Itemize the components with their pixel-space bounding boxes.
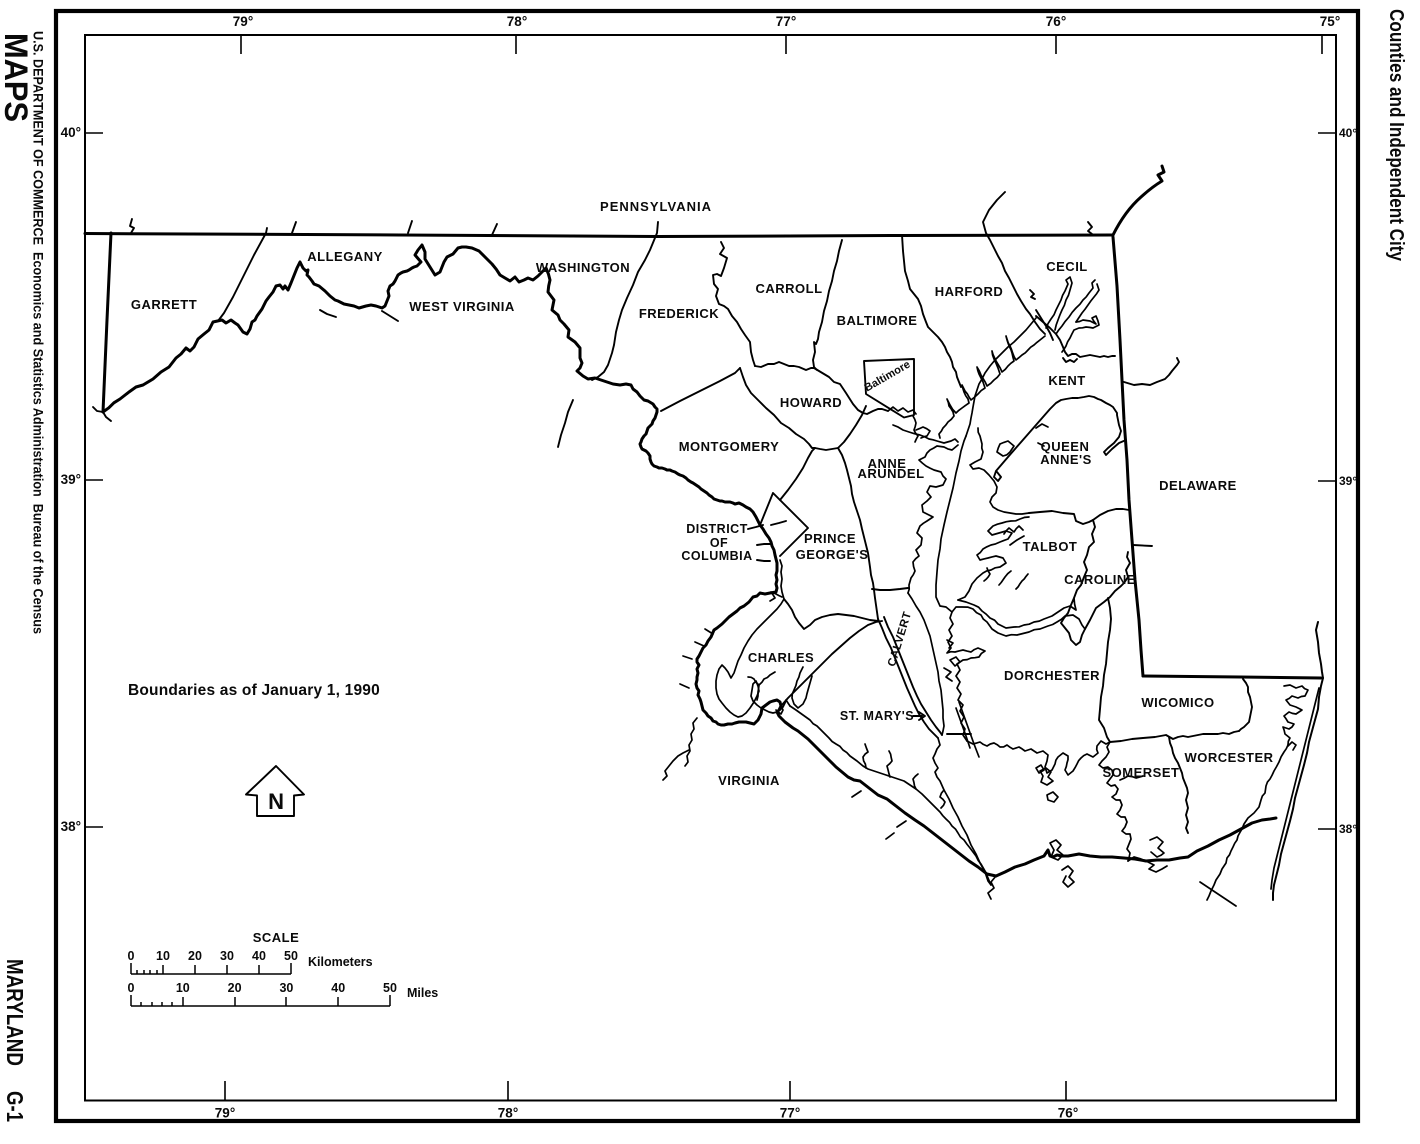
svg-text:ST. MARY'S: ST. MARY'S	[840, 709, 914, 723]
svg-text:PRINCE: PRINCE	[804, 531, 856, 546]
svg-text:WASHINGTON: WASHINGTON	[536, 260, 630, 275]
svg-text:30: 30	[220, 949, 234, 963]
svg-text:DISTRICT: DISTRICT	[686, 522, 748, 536]
svg-text:SOMERSET: SOMERSET	[1103, 765, 1180, 780]
svg-text:KENT: KENT	[1048, 373, 1085, 388]
svg-text:79°: 79°	[233, 14, 253, 29]
svg-text:ANNE'S: ANNE'S	[1040, 452, 1092, 467]
svg-text:Miles: Miles	[407, 986, 438, 1000]
svg-text:78°: 78°	[507, 14, 527, 29]
svg-text:DELAWARE: DELAWARE	[1159, 478, 1237, 493]
svg-text:40: 40	[252, 949, 266, 963]
svg-text:Boundaries as of January 1, 19: Boundaries as of January 1, 1990	[128, 682, 380, 699]
svg-text:30: 30	[279, 981, 293, 995]
svg-text:FREDERICK: FREDERICK	[639, 306, 719, 321]
svg-text:COLUMBIA: COLUMBIA	[681, 549, 752, 563]
svg-text:GEORGE'S: GEORGE'S	[796, 547, 869, 562]
svg-text:77°: 77°	[776, 14, 796, 29]
svg-text:MAPS: MAPS	[0, 33, 34, 122]
svg-text:CARROLL: CARROLL	[755, 281, 822, 296]
svg-text:HOWARD: HOWARD	[780, 395, 842, 410]
svg-text:10: 10	[156, 949, 170, 963]
svg-text:50: 50	[383, 981, 397, 995]
svg-text:CECIL: CECIL	[1046, 259, 1088, 274]
svg-text:79°: 79°	[215, 1106, 235, 1121]
svg-text:40: 40	[331, 981, 345, 995]
svg-text:PENNSYLVANIA: PENNSYLVANIA	[600, 199, 712, 214]
svg-text:SCALE: SCALE	[253, 930, 300, 945]
svg-text:MARYLAND: MARYLAND	[2, 959, 28, 1066]
svg-text:TALBOT: TALBOT	[1023, 539, 1078, 554]
svg-text:20: 20	[188, 949, 202, 963]
svg-text:77°: 77°	[780, 1106, 800, 1121]
svg-text:WORCESTER: WORCESTER	[1185, 750, 1274, 765]
svg-text:20: 20	[228, 981, 242, 995]
svg-text:CHARLES: CHARLES	[748, 650, 814, 665]
svg-text:Counties and Independent City: Counties and Independent City	[1385, 9, 1408, 261]
svg-text:0: 0	[128, 981, 135, 995]
svg-text:50: 50	[284, 949, 298, 963]
svg-text:76°: 76°	[1046, 14, 1066, 29]
svg-text:MONTGOMERY: MONTGOMERY	[679, 439, 780, 454]
svg-text:WEST VIRGINIA: WEST VIRGINIA	[409, 299, 515, 314]
svg-text:10: 10	[176, 981, 190, 995]
svg-text:0: 0	[128, 949, 135, 963]
svg-text:G-1: G-1	[2, 1091, 28, 1122]
svg-text:75°: 75°	[1320, 14, 1340, 29]
svg-text:WICOMICO: WICOMICO	[1141, 695, 1214, 710]
svg-text:CAROLINE: CAROLINE	[1064, 572, 1136, 587]
svg-text:40°: 40°	[1339, 126, 1357, 140]
svg-text:DORCHESTER: DORCHESTER	[1004, 668, 1100, 683]
svg-text:38°: 38°	[1339, 822, 1357, 836]
svg-text:BALTIMORE: BALTIMORE	[837, 313, 918, 328]
svg-text:GARRETT: GARRETT	[131, 297, 197, 312]
svg-text:OF: OF	[710, 536, 728, 550]
svg-text:HARFORD: HARFORD	[935, 284, 1004, 299]
svg-text:39°: 39°	[61, 472, 81, 487]
svg-text:ALLEGANY: ALLEGANY	[307, 249, 383, 264]
svg-text:VIRGINIA: VIRGINIA	[718, 773, 780, 788]
svg-text:40°: 40°	[61, 125, 81, 140]
svg-text:38°: 38°	[61, 819, 81, 834]
svg-text:39°: 39°	[1339, 474, 1357, 488]
svg-text:N: N	[268, 789, 284, 814]
svg-text:Kilometers: Kilometers	[308, 955, 373, 969]
svg-text:ARUNDEL: ARUNDEL	[857, 466, 924, 481]
svg-text:76°: 76°	[1058, 1106, 1078, 1121]
svg-text:78°: 78°	[498, 1106, 518, 1121]
